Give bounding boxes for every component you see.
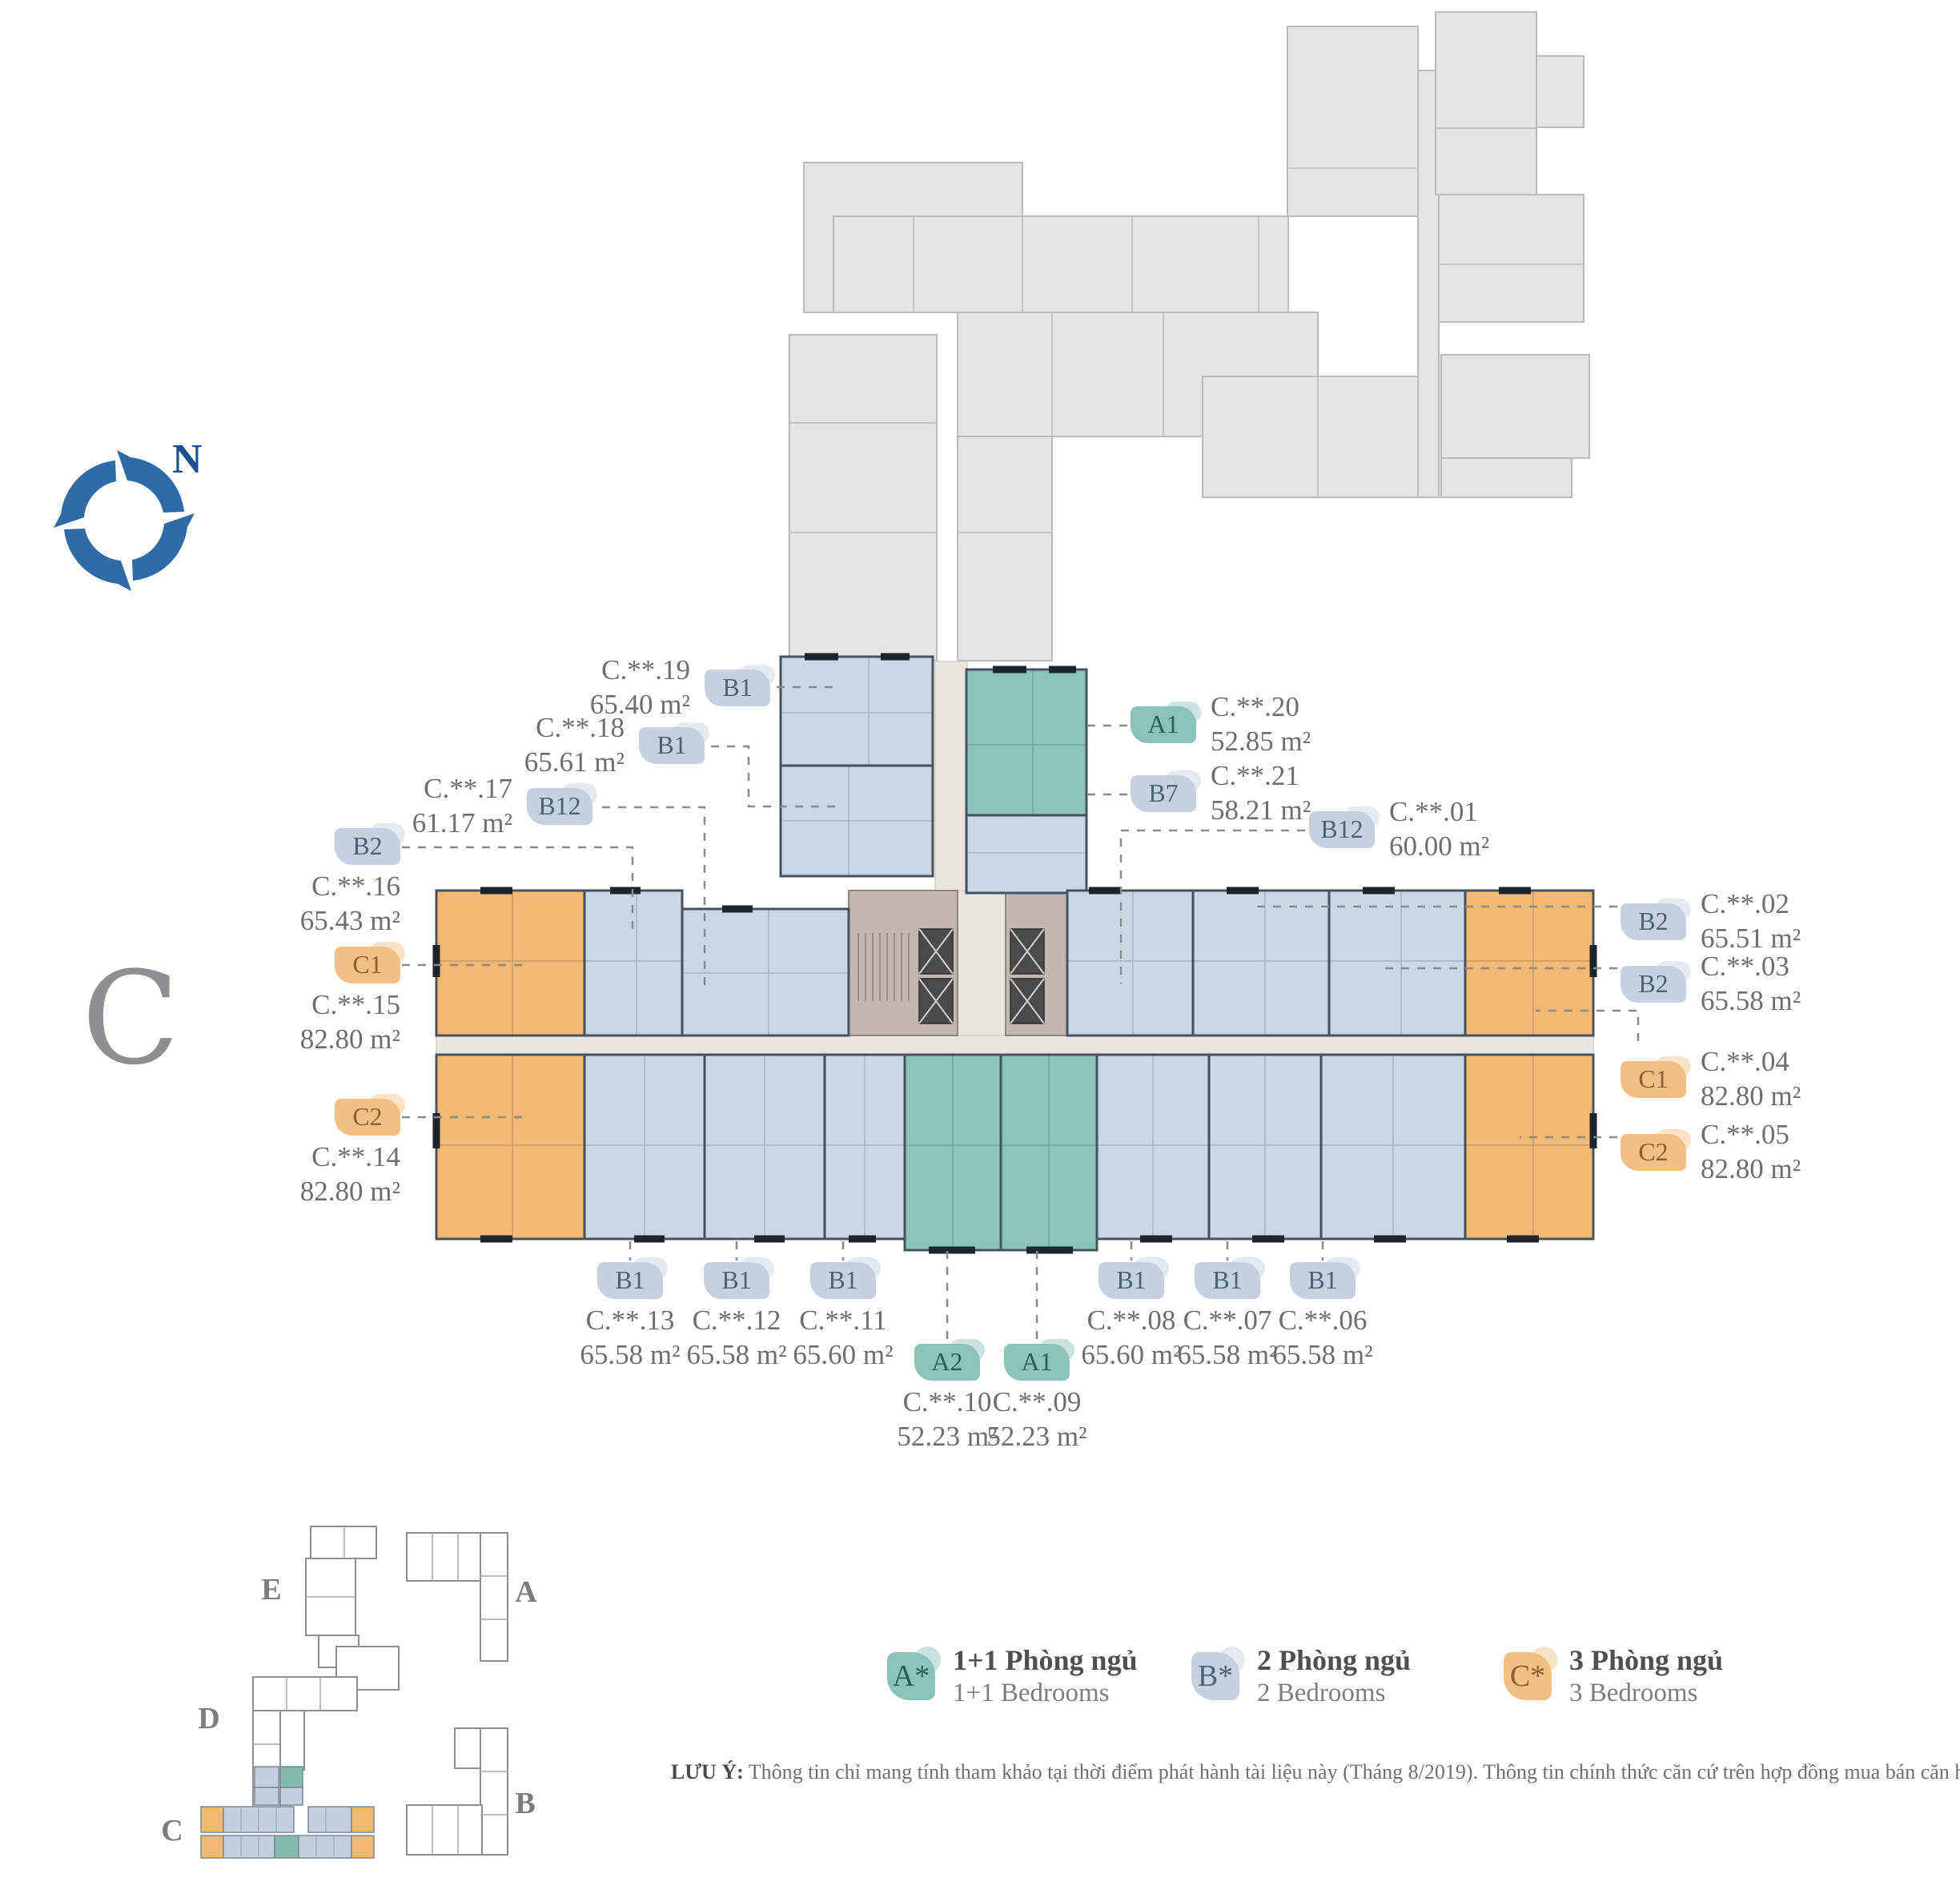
- legend-item-1plus1: A* 1+1 Phòng ngủ 1+1 Bedrooms: [887, 1643, 1138, 1710]
- legend-badge-b: B*: [1191, 1652, 1239, 1700]
- unit-area: 65.58 m²: [1701, 984, 1801, 1019]
- minimap-block-e-label: E: [261, 1573, 281, 1606]
- unit-label-c03: B2 C.**.03 65.58 m²: [1621, 950, 1801, 1018]
- unit-code: C.**.09: [986, 1385, 1086, 1420]
- unit-c19-shape: [781, 657, 933, 766]
- unit-c04-shape: [1465, 891, 1593, 1035]
- unit-code: C.**.11: [793, 1304, 893, 1338]
- unit-type-badge: B1: [705, 670, 770, 706]
- unit-type-badge: B2: [1621, 903, 1686, 940]
- unit-area: 65.58 m²: [1272, 1338, 1372, 1373]
- unit-type-badge: B2: [335, 828, 400, 865]
- unit-c20-shape: [966, 670, 1086, 815]
- unit-code: C.**.17: [375, 772, 512, 806]
- service-cores: [849, 891, 1067, 1035]
- legend-label-en: 2 Bedrooms: [1257, 1678, 1411, 1710]
- minimap-block-c-label: C: [161, 1814, 183, 1848]
- unit-code: C.**.16: [300, 870, 400, 904]
- unit-code: C.**.04: [1701, 1045, 1801, 1080]
- unit-label-c20: A1 C.**.20 52.85 m²: [1131, 690, 1311, 758]
- legend-label-en: 3 Bedrooms: [1569, 1678, 1723, 1710]
- site-minimap: E A D C B: [161, 1526, 537, 1858]
- legend-badge-c: C*: [1504, 1652, 1552, 1700]
- unit-area: 82.80 m²: [1701, 1152, 1801, 1187]
- unit-label-c14: C2 C.**.14 82.80 m²: [280, 1099, 400, 1208]
- unit-area: 58.21 m²: [1211, 794, 1311, 828]
- legend-label-en: 1+1 Bedrooms: [953, 1678, 1138, 1710]
- unit-code: C.**.03: [1701, 950, 1801, 984]
- legend-item-2bed: B* 2 Phòng ngủ 2 Bedrooms: [1191, 1643, 1411, 1710]
- unit-area: 60.00 m²: [1389, 830, 1489, 864]
- unit-type-badge: B1: [639, 727, 705, 764]
- unit-type-badge: C1: [1621, 1061, 1686, 1098]
- unit-type-badge: C2: [335, 1099, 400, 1136]
- unit-type-badge: A1: [1131, 706, 1196, 743]
- unit-c03-shape: [1329, 891, 1465, 1035]
- unit-label-c21: B7 C.**.21 58.21 m²: [1131, 759, 1311, 827]
- unit-type-badge: B1: [597, 1262, 663, 1299]
- unit-code: C.**.02: [1701, 887, 1801, 922]
- unit-c02-shape: [1193, 891, 1329, 1035]
- unit-code: C.**.06: [1272, 1304, 1372, 1338]
- unit-type-badge: B1: [704, 1262, 769, 1299]
- legend-label-vi: 3 Phòng ngủ: [1569, 1643, 1723, 1678]
- legend-badge-a: A*: [887, 1652, 935, 1700]
- unit-code: C.**.18: [487, 711, 625, 746]
- unit-code: C.**.05: [1701, 1118, 1801, 1152]
- unit-label-c16: B2 C.**.16 65.43 m²: [280, 828, 400, 938]
- unit-type-badge: B1: [1290, 1262, 1356, 1299]
- unit-area: 82.80 m²: [300, 1175, 400, 1209]
- unit-type-badge: B1: [810, 1262, 876, 1299]
- unit-label-c01: B12 C.**.01 60.00 m²: [1309, 795, 1489, 863]
- minimap-block-d-label: D: [198, 1702, 219, 1735]
- unit-type-badge: B12: [1309, 811, 1375, 848]
- unit-code: C.**.19: [552, 653, 690, 688]
- legend-label-vi: 1+1 Phòng ngủ: [953, 1643, 1138, 1678]
- unit-label-c17: C.**.17 61.17 m² B12: [375, 772, 592, 840]
- unit-area: 52.85 m²: [1211, 725, 1311, 759]
- unit-c01-shape: [1067, 891, 1193, 1035]
- disclaimer-note-label: LƯU Ý:: [671, 1760, 744, 1783]
- unit-code: C.**.21: [1211, 759, 1311, 794]
- unit-code: C.**.20: [1211, 690, 1311, 725]
- unit-type-badge: B2: [1621, 966, 1686, 1003]
- compass-north-label: N: [172, 436, 203, 482]
- unit-area: 65.43 m²: [300, 904, 400, 939]
- unit-type-badge: C2: [1621, 1134, 1686, 1171]
- unit-c17-shape: [682, 909, 849, 1035]
- unit-area: 82.80 m²: [300, 1023, 400, 1057]
- unit-c21-shape: [966, 815, 1086, 893]
- unit-label-c05: C2 C.**.05 82.80 m²: [1621, 1118, 1801, 1186]
- legend-label-vi: 2 Phòng ngủ: [1257, 1643, 1411, 1678]
- unit-label-c06: B1 C.**.06 65.58 m²: [1247, 1262, 1399, 1372]
- unit-label-c18: C.**.18 65.61 m² B1: [487, 711, 705, 779]
- unit-label-c15: C1 C.**.15 82.80 m²: [280, 947, 400, 1056]
- disclaimer-note: LƯU Ý: Thông tin chỉ mang tính tham khảo…: [671, 1760, 1960, 1784]
- unit-c05-shape: [1465, 1055, 1593, 1239]
- minimap-block-b-label: B: [515, 1787, 535, 1820]
- unit-type-badge: B7: [1131, 775, 1196, 812]
- unit-area: 52.23 m²: [986, 1420, 1086, 1454]
- unit-code: C.**.14: [300, 1140, 400, 1175]
- unit-label-c02: B2 C.**.02 65.51 m²: [1621, 887, 1801, 955]
- adjacent-block-silhouette: [789, 12, 1589, 661]
- unit-code: C.**.15: [300, 988, 400, 1023]
- unit-type-badge: B12: [527, 788, 592, 825]
- unit-type-badge: C1: [335, 947, 400, 983]
- unit-area: 82.80 m²: [1701, 1080, 1801, 1114]
- disclaimer-note-text: Thông tin chỉ mang tính tham khảo tại th…: [749, 1760, 1960, 1783]
- legend-item-3bed: C* 3 Phòng ngủ 3 Bedrooms: [1504, 1643, 1723, 1710]
- unit-label-c04: C1 C.**.04 82.80 m²: [1621, 1045, 1801, 1113]
- unit-c15-shape: [436, 891, 584, 1035]
- unit-c14-shape: [436, 1055, 584, 1239]
- minimap-block-a-label: A: [515, 1575, 537, 1609]
- unit-code: C.**.01: [1389, 795, 1489, 830]
- block-letter: C: [82, 955, 179, 1083]
